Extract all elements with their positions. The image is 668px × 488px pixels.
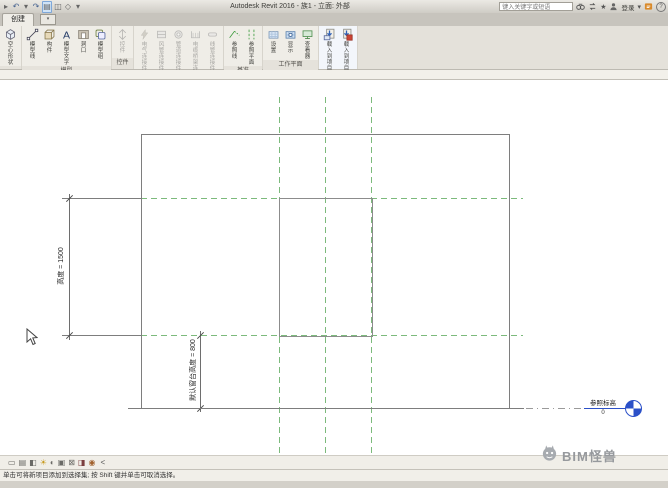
dropdown-caret-icon[interactable]: ▾ xyxy=(637,2,641,11)
conduit-connector-button: 线管 连接件 xyxy=(204,27,221,72)
ribbon-button-label: 载入到 项目 xyxy=(327,42,333,72)
dim-sill-label[interactable]: 默认窗台高度 = 800 xyxy=(188,324,198,416)
ribbon-panel-连接件: 电气 连接件风管 连接件管道 连接件电缆桥架 连接件线管 连接件连接件 xyxy=(134,26,224,69)
monster-logo-icon xyxy=(540,443,559,467)
favorites-star-icon[interactable]: ★ xyxy=(600,2,606,11)
sign-in-user-icon[interactable] xyxy=(609,2,618,11)
reference-line-icon xyxy=(228,28,241,42)
default-3d-view-icon[interactable]: ◇ xyxy=(64,2,72,12)
options-bar xyxy=(0,70,668,80)
model-text-button[interactable]: A模型 文字 xyxy=(58,27,75,66)
qat-customize-icon[interactable]: ▾ xyxy=(74,2,82,12)
ribbon-panel-基准: 参照 线参照 平面基准 xyxy=(224,26,263,69)
level-line-dashdot[interactable] xyxy=(526,408,584,409)
title-bar: ▸↶▾↷▤◫◇▾ Autodesk Revit 2016 - 族1 - 立面: … xyxy=(0,0,668,14)
watermark: BIM怪兽 xyxy=(540,443,617,467)
opening-icon xyxy=(77,28,90,42)
watermark-text: BIM怪兽 xyxy=(562,446,617,465)
section-icon[interactable]: ◫ xyxy=(54,2,62,12)
ribbon-tab-row: 创建 ▾ xyxy=(0,13,668,26)
dim-height-witness-top[interactable] xyxy=(62,198,142,199)
undo-icon[interactable]: ↶ xyxy=(12,2,20,12)
dim-height-label[interactable]: 高度 = 1500 xyxy=(56,231,66,301)
temporary-hide-icon[interactable]: ◨ xyxy=(78,458,86,468)
ribbon-panel-模型: 模型 线构件A模型 文字洞口模型 组模型 xyxy=(22,26,112,69)
reference-plane-button[interactable]: 参照 平面 xyxy=(243,27,260,66)
communication-center-icon[interactable] xyxy=(644,2,653,11)
panel-label: 控件 xyxy=(112,58,133,69)
set-workplane-icon xyxy=(267,28,280,42)
viewer-icon xyxy=(301,28,314,42)
ribbon-button-label: 电气 连接件 xyxy=(142,42,148,72)
ribbon-button-label: 参照 线 xyxy=(232,42,238,60)
dim-height-line[interactable] xyxy=(69,194,70,340)
show-workplane-icon xyxy=(284,28,297,42)
redo-icon[interactable]: ↷ xyxy=(32,2,40,12)
svg-text:A: A xyxy=(63,30,71,41)
help-icon[interactable]: ? xyxy=(656,2,666,12)
control-button: 控件 xyxy=(114,27,131,54)
reveal-hidden-icon[interactable]: ◉ xyxy=(89,458,96,468)
level-head-symbol[interactable] xyxy=(625,400,642,417)
tab-create[interactable]: 创建 xyxy=(2,13,34,26)
window-opening[interactable] xyxy=(279,198,373,337)
model-group-icon xyxy=(94,28,107,42)
duct-connector-button: 风管 连接件 xyxy=(153,27,170,72)
view-control-icons: ▭▤◧☀◐▣⊠◨◉ xyxy=(8,458,96,468)
ribbon-button-label: 模型 组 xyxy=(98,42,104,60)
undo-dropdown-icon[interactable]: ▾ xyxy=(22,2,30,12)
sun-path-icon[interactable]: ☀ xyxy=(40,458,47,468)
model-text-icon: A xyxy=(60,28,73,42)
ribbon-panel-族编辑器: 载入到 项目载入到 项目并关闭族编辑器 xyxy=(319,26,358,69)
level-line[interactable] xyxy=(128,408,524,409)
pipe-connector-button: 管道 连接件 xyxy=(170,27,187,72)
show-crop-icon[interactable]: ⊠ xyxy=(68,458,75,468)
viewer-button[interactable]: 查看器 xyxy=(299,27,316,60)
ribbon-button-label: 线管 连接件 xyxy=(210,42,216,72)
model-group-button[interactable]: 模型 组 xyxy=(92,27,109,60)
ribbon-button-label: 查看器 xyxy=(305,42,311,60)
drawing-area[interactable]: 高度 = 1500 默认窗台高度 = 800 参照标高 0 xyxy=(0,80,668,455)
reference-plane-icon xyxy=(245,28,258,42)
ribbon-button-label: 模型 文字 xyxy=(64,42,70,66)
revit-window: ▸↶▾↷▤◫◇▾ Autodesk Revit 2016 - 族1 - 立面: … xyxy=(0,0,668,488)
ribbon-panel-控件: 控件控件 xyxy=(112,26,134,69)
ribbon-button-label: 构件 xyxy=(47,42,53,54)
search-binoculars-icon[interactable] xyxy=(576,2,585,11)
model-line-icon xyxy=(26,28,39,42)
ribbon-button-label: 参照 平面 xyxy=(249,42,255,66)
control-icon xyxy=(116,28,129,42)
load-into-project-icon xyxy=(323,28,336,42)
ribbon-button-label: 控件 xyxy=(120,42,126,54)
ribbon-button-label: 设置 xyxy=(271,42,277,54)
set-workplane-button[interactable]: 设置 xyxy=(265,27,282,54)
crop-view-icon[interactable]: ▣ xyxy=(58,458,66,468)
show-workplane-button[interactable]: 显示 xyxy=(282,27,299,54)
model-line-button[interactable]: 模型 线 xyxy=(24,27,41,60)
ribbon-button-label: 显示 xyxy=(288,42,294,54)
mouse-cursor xyxy=(26,328,38,351)
pipe-connector-icon xyxy=(172,28,185,42)
search-input[interactable] xyxy=(499,2,573,11)
load-into-project-close-icon xyxy=(340,28,353,42)
ribbon-empty-area xyxy=(358,26,668,69)
opening-button[interactable]: 洞口 xyxy=(75,27,92,54)
visual-style-icon[interactable]: ◧ xyxy=(29,458,37,468)
ribbon-button-label: 管道 连接件 xyxy=(176,42,182,72)
view-scale-icon[interactable]: ▭ xyxy=(8,458,16,468)
titlebar-right: ★ 登录 ▾ ? xyxy=(499,1,666,12)
sign-in-label[interactable]: 登录 xyxy=(621,2,634,12)
detail-level-icon[interactable]: ▤ xyxy=(19,458,27,468)
ribbon-button-label: 洞口 xyxy=(81,42,87,54)
electrical-connector-icon xyxy=(138,28,151,42)
level-elevation[interactable]: 0 xyxy=(582,410,624,416)
ribbon-panel-shape: 空心 形状 xyxy=(0,26,22,69)
viewbar-collapse-icon[interactable]: < xyxy=(101,458,106,467)
ribbon-button-label: 空心 形状 xyxy=(8,42,14,66)
component-icon xyxy=(43,28,56,42)
status-message: 单击可将新项目添加到选择集; 按 Shift 键并单击可取消选择。 xyxy=(3,472,179,479)
duct-connector-icon xyxy=(155,28,168,42)
level-name[interactable]: 参照标高 xyxy=(582,397,624,407)
dim-sill-line[interactable] xyxy=(200,331,201,412)
window-title: Autodesk Revit 2016 - 族1 - 立面: 外部 xyxy=(180,0,400,13)
ribbon-panel-工作平面: 设置显示查看器工作平面 xyxy=(263,26,319,69)
window-bottom-edge xyxy=(0,481,668,488)
cable-tray-connector-icon xyxy=(189,28,202,42)
ribbon-button-label: 模型 线 xyxy=(30,42,36,60)
dim-height-witness-bottom[interactable] xyxy=(62,335,142,336)
modify-arrow-icon[interactable]: ▸ xyxy=(2,2,10,12)
load-into-project-button[interactable]: 载入到 项目 xyxy=(321,27,338,72)
ribbon: 空心 形状模型 线构件A模型 文字洞口模型 组模型控件控件电气 连接件风管 连接… xyxy=(0,26,668,70)
ribbon-button-label: 风管 连接件 xyxy=(159,42,165,72)
conduit-connector-icon xyxy=(206,28,219,42)
hollow-form-icon xyxy=(4,28,17,42)
panel-label xyxy=(0,66,21,69)
component-button[interactable]: 构件 xyxy=(41,27,58,54)
ribbon-display-toggle-icon[interactable]: ▾ xyxy=(40,14,56,25)
thin-lines-icon[interactable]: ▤ xyxy=(42,1,52,13)
reference-line-button[interactable]: 参照 线 xyxy=(226,27,243,60)
shadows-icon[interactable]: ◐ xyxy=(50,458,55,468)
hollow-form-button[interactable]: 空心 形状 xyxy=(2,27,19,66)
exchange-icon[interactable] xyxy=(588,2,597,11)
quick-access-toolbar: ▸↶▾↷▤◫◇▾ xyxy=(2,0,82,13)
status-bar: 单击可将新项目添加到选择集; 按 Shift 键并单击可取消选择。 xyxy=(0,469,668,481)
level-line-blue[interactable] xyxy=(584,408,625,409)
electrical-connector-button: 电气 连接件 xyxy=(136,27,153,72)
